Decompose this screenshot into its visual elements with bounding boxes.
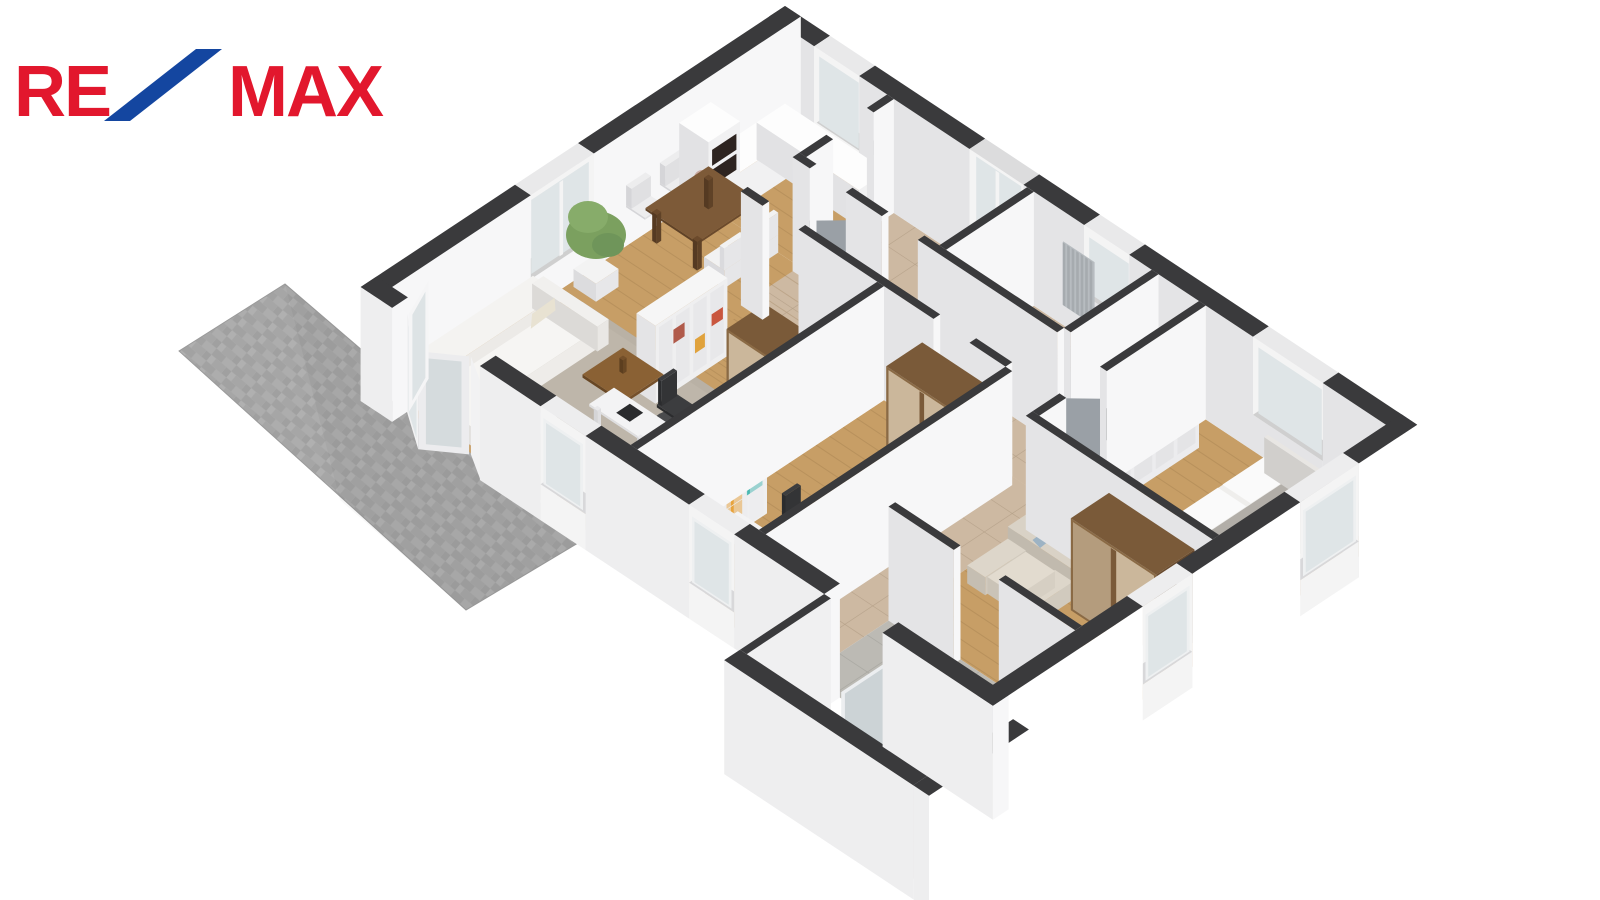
svg-text:MAX: MAX xyxy=(228,52,384,132)
svg-text:RE: RE xyxy=(14,52,110,132)
